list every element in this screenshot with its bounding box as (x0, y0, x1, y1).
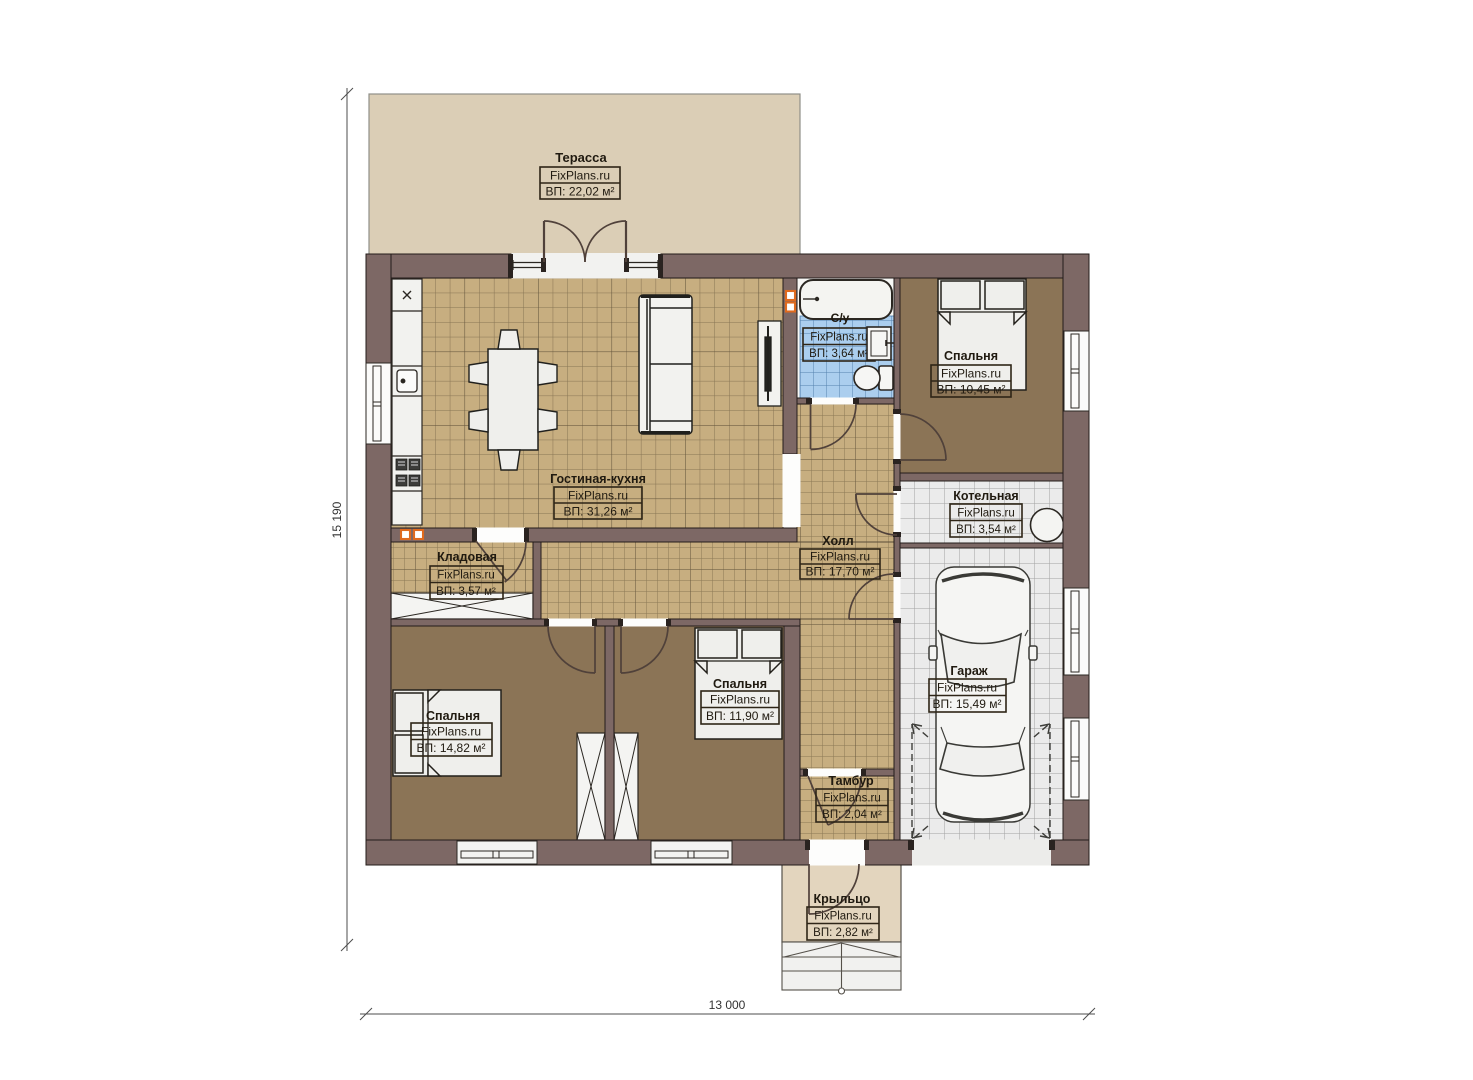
svg-text:FixPlans.ru: FixPlans.ru (814, 911, 872, 923)
svg-text:Терасса: Терасса (555, 150, 607, 165)
svg-text:ВП: 10,45 м²: ВП: 10,45 м² (937, 383, 1006, 397)
svg-text:Холл: Холл (822, 534, 853, 548)
svg-text:Спальня: Спальня (713, 677, 767, 691)
svg-text:FixPlans.ru: FixPlans.ru (810, 332, 868, 344)
svg-text:FixPlans.ru: FixPlans.ru (941, 367, 1001, 381)
svg-text:Тамбур: Тамбур (828, 774, 874, 788)
svg-text:ВП: 14,82 м²: ВП: 14,82 м² (417, 741, 486, 755)
svg-text:ВП: 17,70 м²: ВП: 17,70 м² (806, 565, 875, 579)
svg-text:ВП: 2,04 м²: ВП: 2,04 м² (822, 809, 882, 821)
svg-text:Спальня: Спальня (426, 709, 480, 723)
svg-text:FixPlans.ru: FixPlans.ru (421, 725, 481, 739)
svg-text:Кладовая: Кладовая (437, 550, 497, 564)
svg-text:FixPlans.ru: FixPlans.ru (957, 508, 1015, 520)
svg-text:ВП: 3,54 м²: ВП: 3,54 м² (956, 524, 1016, 536)
svg-text:ВП: 22,02 м²: ВП: 22,02 м² (546, 185, 615, 199)
svg-text:FixPlans.ru: FixPlans.ru (823, 793, 881, 805)
svg-text:FixPlans.ru: FixPlans.ru (810, 550, 870, 564)
svg-text:13 000: 13 000 (709, 998, 746, 1012)
svg-text:ВП: 31,26 м²: ВП: 31,26 м² (564, 505, 633, 519)
svg-text:FixPlans.ru: FixPlans.ru (568, 489, 628, 503)
svg-text:FixPlans.ru: FixPlans.ru (437, 570, 495, 582)
svg-text:FixPlans.ru: FixPlans.ru (937, 681, 997, 695)
svg-text:ВП: 3,57 м²: ВП: 3,57 м² (436, 586, 496, 598)
svg-text:ВП: 2,82 м²: ВП: 2,82 м² (813, 927, 873, 939)
svg-text:С/у: С/у (831, 311, 850, 325)
svg-text:Гараж: Гараж (950, 664, 987, 678)
svg-text:FixPlans.ru: FixPlans.ru (550, 169, 610, 183)
svg-text:Крыльцо: Крыльцо (814, 892, 871, 906)
svg-text:Гостиная-кухня: Гостиная-кухня (550, 472, 646, 486)
svg-text:Спальня: Спальня (944, 349, 998, 363)
svg-text:ВП: 3,64 м²: ВП: 3,64 м² (809, 348, 869, 360)
svg-text:ВП: 15,49 м²: ВП: 15,49 м² (933, 697, 1002, 711)
svg-text:Котельная: Котельная (953, 489, 1018, 503)
svg-text:FixPlans.ru: FixPlans.ru (710, 693, 770, 707)
svg-text:15 190: 15 190 (330, 501, 344, 538)
svg-text:ВП: 11,90 м²: ВП: 11,90 м² (706, 709, 774, 723)
